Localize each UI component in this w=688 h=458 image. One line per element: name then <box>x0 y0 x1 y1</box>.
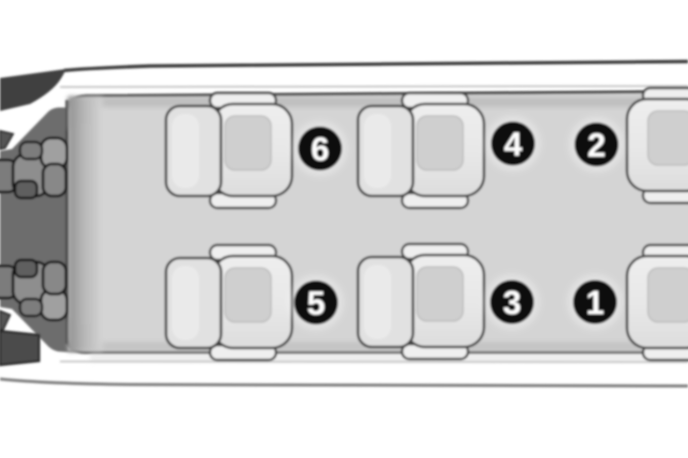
svg-text:5: 5 <box>307 285 325 322</box>
svg-text:2: 2 <box>587 127 605 164</box>
svg-text:6: 6 <box>311 131 329 168</box>
svg-text:3: 3 <box>503 284 521 321</box>
svg-text:4: 4 <box>504 126 523 163</box>
svg-text:1: 1 <box>586 284 604 321</box>
